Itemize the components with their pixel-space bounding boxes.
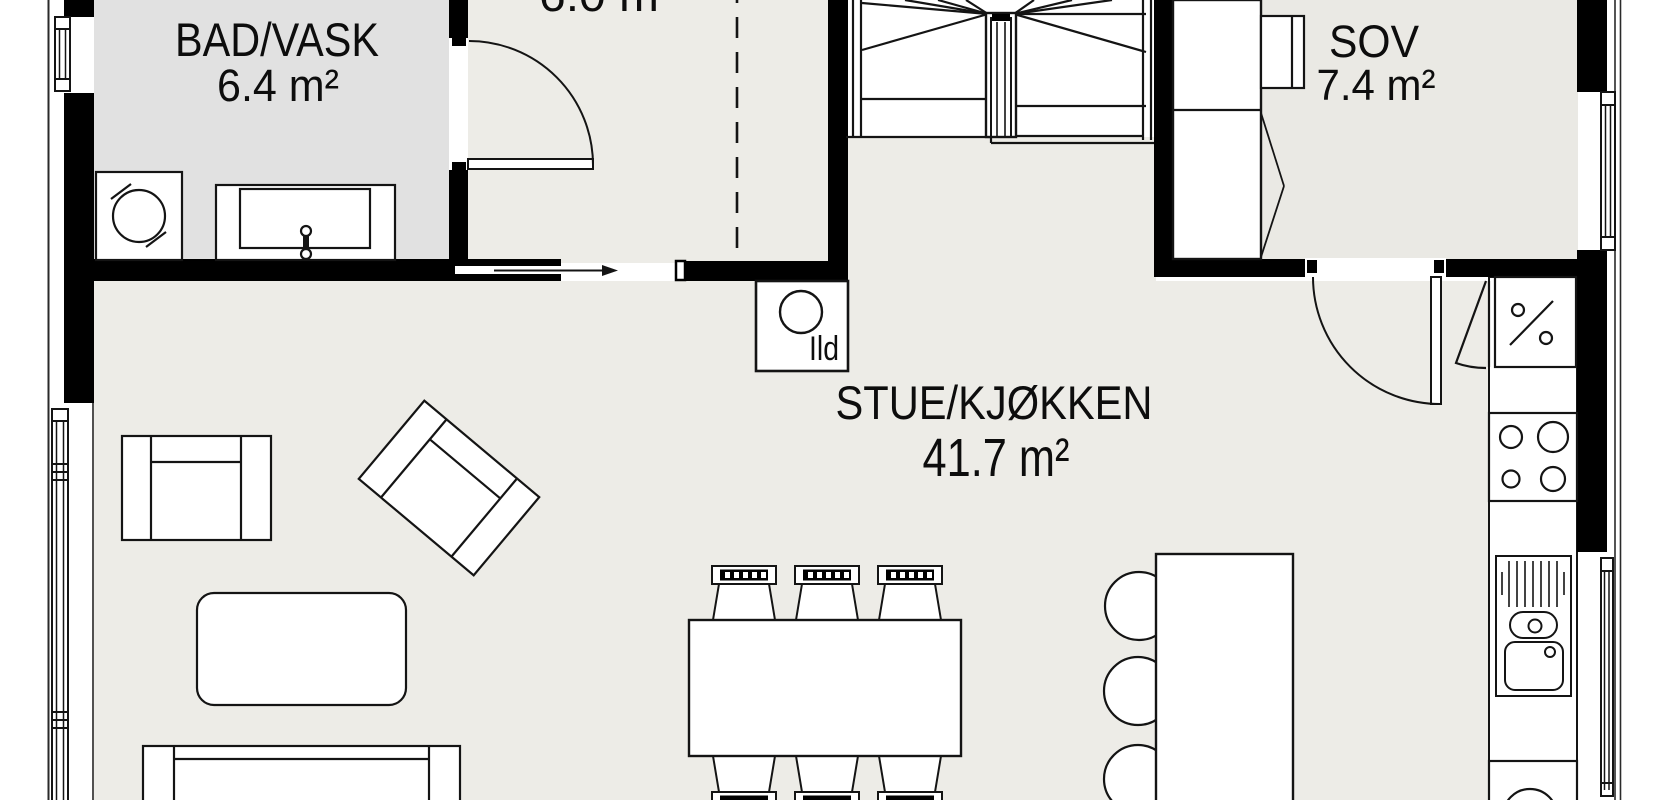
svg-text:BAD/VASK: BAD/VASK <box>175 13 379 66</box>
svg-text:7.4 m²: 7.4 m² <box>1317 61 1436 110</box>
svg-text:41.7 m²: 41.7 m² <box>923 428 1070 488</box>
svg-text:6.0 m²: 6.0 m² <box>539 0 675 21</box>
svg-text:6.4 m²: 6.4 m² <box>217 60 339 111</box>
svg-text:STUE/KJØKKEN: STUE/KJØKKEN <box>836 376 1153 429</box>
svg-text:Ild: Ild <box>809 330 839 368</box>
svg-text:SOV: SOV <box>1329 16 1419 67</box>
